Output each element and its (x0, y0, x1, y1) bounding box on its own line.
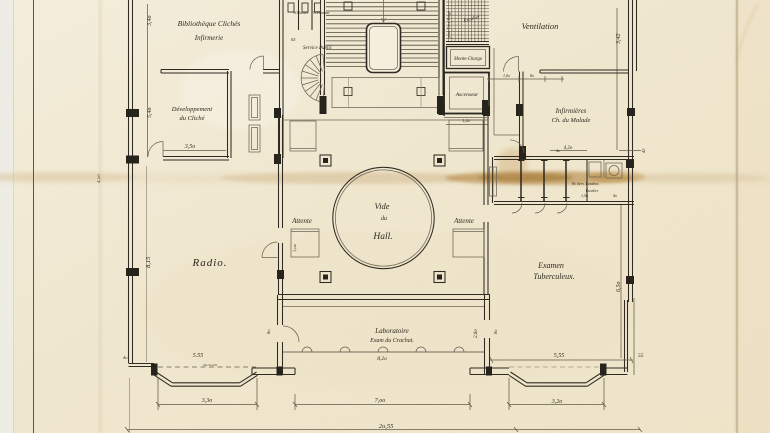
svg-text:pour Cave Etage: pour Cave Etage (446, 11, 451, 39)
svg-text:5,55: 5,55 (554, 353, 565, 359)
svg-text:du: du (381, 216, 387, 222)
svg-text:du Cliché: du Cliché (179, 115, 205, 122)
svg-text:Attente: Attente (291, 217, 312, 225)
svg-text:8o: 8o (493, 329, 498, 334)
svg-text:Monte-Charge: Monte-Charge (453, 57, 483, 62)
svg-text:W.Homme: W.Homme (313, 10, 330, 15)
svg-text:Examen: Examen (537, 261, 564, 270)
svg-text:Ventilation: Ventilation (522, 21, 559, 31)
svg-text:Wc Serv. Lavabos: Wc Serv. Lavabos (571, 182, 599, 186)
svg-text:Ch. du Malade: Ch. du Malade (552, 117, 591, 124)
svg-text:65: 65 (291, 37, 296, 42)
svg-text:4,2o: 4,2o (564, 146, 573, 151)
svg-text:8o: 8o (266, 329, 271, 334)
svg-text:Tuberculeux.: Tuberculeux. (533, 272, 574, 281)
svg-text:8,2o: 8,2o (377, 356, 387, 362)
svg-text:3,2o: 3,2o (551, 399, 563, 405)
svg-text:Exam du Crachat.: Exam du Crachat. (369, 338, 414, 344)
svg-text:4o: 4o (123, 355, 128, 360)
svg-text:Bibliothèque Clichés: Bibliothèque Clichés (178, 19, 241, 28)
svg-text:8,15: 8,15 (145, 256, 152, 268)
svg-text:4o: 4o (556, 148, 560, 153)
svg-text:Développement: Développement (171, 106, 213, 113)
svg-text:Service Public: Service Public (303, 46, 333, 51)
svg-text:4o: 4o (613, 193, 617, 198)
svg-text:45: 45 (641, 148, 646, 153)
svg-text:Infirmerie: Infirmerie (194, 34, 223, 42)
svg-text:2o,55: 2o,55 (379, 423, 394, 430)
svg-text:5,4o: 5,4o (146, 108, 153, 119)
svg-text:4,5o: 4,5o (97, 174, 102, 183)
svg-text:3,4o: 3,4o (146, 16, 153, 28)
svg-text:Hall.: Hall. (372, 232, 392, 242)
svg-text:5.55: 5.55 (193, 353, 204, 359)
svg-text:Infirmières: Infirmières (555, 107, 587, 115)
svg-text:W.Dames: W.Dames (293, 10, 309, 15)
svg-text:Attente: Attente (453, 217, 474, 225)
svg-text:3,3o: 3,3o (201, 398, 213, 404)
svg-text:Ascenseur: Ascenseur (455, 92, 479, 98)
svg-text:55: 55 (638, 353, 644, 359)
svg-text:Radio.: Radio. (191, 257, 227, 269)
svg-text:8o: 8o (530, 73, 534, 78)
svg-text:7,oo: 7,oo (375, 398, 386, 404)
svg-text:Laboratoire: Laboratoire (374, 327, 409, 335)
svg-text:3,42: 3,42 (615, 34, 622, 46)
svg-text:6,5o: 6,5o (616, 282, 622, 293)
svg-text:Vide: Vide (375, 201, 390, 211)
svg-text:2,6o: 2,6o (474, 329, 479, 338)
svg-text:3,5o: 3,5o (184, 144, 196, 150)
